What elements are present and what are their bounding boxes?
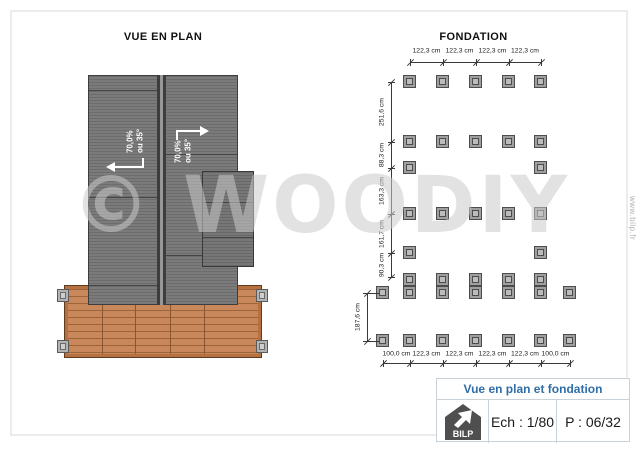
dimension-label: 122,3 cm — [479, 351, 507, 358]
footing — [502, 334, 515, 347]
footing — [534, 273, 547, 286]
slope-arrow-right-icon — [200, 126, 209, 136]
footing — [436, 286, 449, 299]
footing — [469, 135, 482, 148]
footing — [403, 273, 416, 286]
foundation-title: FONDATION — [376, 31, 571, 43]
dimension-label: 122,3 cm — [446, 48, 474, 55]
footing — [403, 135, 416, 148]
slope-degrees: ou 35° — [136, 129, 146, 153]
dimension-extension-line — [363, 293, 379, 294]
dimension-label: 100,0 cm — [542, 351, 570, 358]
slope-label-left: 70,0% ou 35° — [126, 129, 147, 153]
footing — [469, 334, 482, 347]
footing — [534, 75, 547, 88]
watermark: © WOODIY — [72, 167, 570, 245]
dimension-label: 122,3 cm — [479, 48, 507, 55]
footing — [469, 75, 482, 88]
footing — [502, 75, 515, 88]
footing — [436, 334, 449, 347]
footing — [403, 286, 416, 299]
dimension-label: 122,3 cm — [413, 351, 441, 358]
page-number: P : 06/32 — [557, 400, 629, 443]
dimension-label: 122,3 cm — [511, 48, 539, 55]
deck-anchor — [57, 340, 69, 353]
slope-degrees: ou 35° — [184, 139, 194, 163]
dimension-line — [367, 293, 368, 341]
scale-value: Ech : 1/80 — [489, 400, 557, 443]
deck-anchor — [256, 289, 268, 302]
bilp-logo: BILP — [437, 400, 489, 443]
footing — [534, 286, 547, 299]
footing — [403, 334, 416, 347]
bilp-logo-icon: BILP — [444, 403, 482, 441]
slope-percent: 70,0% — [174, 139, 184, 163]
dimension-extension-line — [363, 341, 379, 342]
dimension-label: 187,6 cm — [355, 303, 362, 331]
footing — [534, 334, 547, 347]
footing — [436, 273, 449, 286]
dimension-label: 122,3 cm — [446, 351, 474, 358]
footing — [563, 286, 576, 299]
footing — [502, 273, 515, 286]
slope-arrow-right-tail — [176, 130, 178, 140]
bilp-logo-text: BILP — [452, 429, 473, 439]
dimension-label: 122,3 cm — [413, 48, 441, 55]
deck-anchor — [57, 289, 69, 302]
footing — [502, 286, 515, 299]
footing — [469, 286, 482, 299]
footing — [534, 135, 547, 148]
dimension-label: 100,0 cm — [383, 351, 411, 358]
footing — [403, 75, 416, 88]
roof-joint-line — [89, 285, 157, 286]
deck-anchor — [256, 340, 268, 353]
footing — [436, 135, 449, 148]
roof-joint-line — [89, 90, 157, 91]
website-url: www.bilp.fr — [628, 196, 637, 240]
dimension-label: 90,3 cm — [379, 253, 386, 277]
footing — [436, 75, 449, 88]
footing — [563, 334, 576, 347]
drawing-sheet: VUE EN PLAN FONDATION 70,0% ou 35° 70,0%… — [0, 0, 640, 452]
title-block: Vue en plan et fondation BILP Ech : 1/80… — [436, 378, 630, 442]
footing — [502, 135, 515, 148]
title-block-title: Vue en plan et fondation — [437, 379, 629, 400]
plan-view-title: VUE EN PLAN — [63, 31, 263, 43]
slope-percent: 70,0% — [126, 129, 136, 153]
slope-label-right: 70,0% ou 35° — [174, 139, 195, 163]
dimension-label: 122,3 cm — [511, 351, 539, 358]
dimension-label: 251,6 cm — [379, 98, 386, 126]
slope-arrow-right-line — [176, 130, 202, 132]
footing — [469, 273, 482, 286]
